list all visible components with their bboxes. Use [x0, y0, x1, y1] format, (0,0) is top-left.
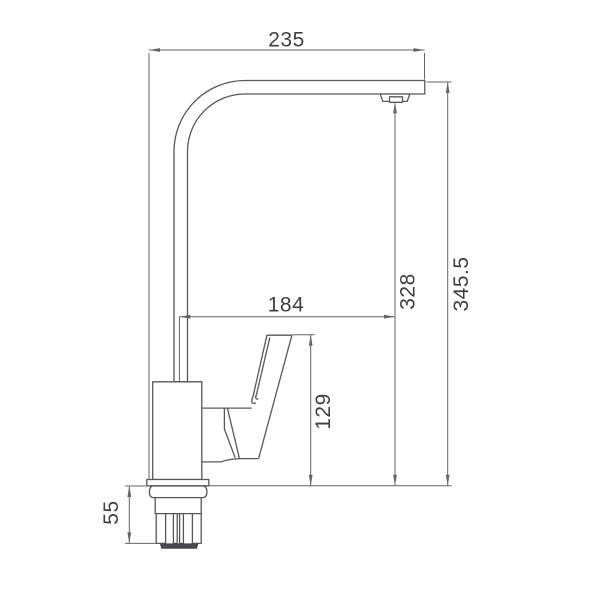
arrow-top — [309, 335, 313, 346]
arrow-bottom — [309, 475, 313, 486]
arrow-bottom — [127, 532, 131, 543]
arrow-top — [446, 82, 450, 93]
handle-lever — [259, 335, 292, 458]
shank-cup — [155, 498, 201, 514]
dimension-base-depth: 55 — [100, 486, 158, 543]
faucet-dimension-drawing: 235 184 345.5 328 — [0, 0, 600, 600]
dim-label-spout-reach: 184 — [268, 294, 305, 317]
arrow-bottom — [446, 475, 450, 486]
shank-rib-mid-2 — [180, 514, 184, 544]
dimension-overall-height: 345.5 — [427, 82, 474, 486]
faucet-spout-pipe — [174, 81, 425, 382]
dim-label-handle-height: 129 — [312, 393, 335, 430]
dimension-spout-reach: 184 — [179, 294, 395, 382]
dim-label-outlet-height: 328 — [397, 273, 420, 310]
dim-label-base-depth: 55 — [100, 500, 123, 524]
base-plate — [147, 480, 209, 486]
shank-rib-mid-1 — [173, 514, 177, 544]
dimension-outlet-height: 328 — [393, 102, 419, 485]
dim-label-overall-height: 345.5 — [450, 256, 473, 311]
dim-label-spout-width: 235 — [268, 29, 305, 52]
arrow-bottom — [393, 475, 397, 486]
arrow-top — [127, 486, 131, 497]
dimension-handle-height: 129 — [293, 335, 336, 486]
arrow-right — [384, 315, 395, 319]
shank-gasket-band — [160, 543, 199, 548]
handle-lever-front-inner-edge — [256, 338, 270, 399]
cartridge-cap-bottom — [202, 459, 259, 462]
handle-lever-front-edge — [252, 335, 267, 403]
technical-drawing-page: 235 184 345.5 328 — [0, 0, 600, 600]
spout-outlet-aerator — [390, 97, 403, 103]
arrow-top — [393, 102, 397, 113]
arrow-right — [414, 48, 425, 52]
shank-rib-left — [156, 514, 165, 544]
base-collar-ring — [149, 486, 207, 498]
cartridge-right-edge — [227, 408, 239, 458]
faucet-body — [153, 382, 202, 480]
arrow-left — [149, 48, 160, 52]
shank-rib-right — [192, 514, 201, 544]
